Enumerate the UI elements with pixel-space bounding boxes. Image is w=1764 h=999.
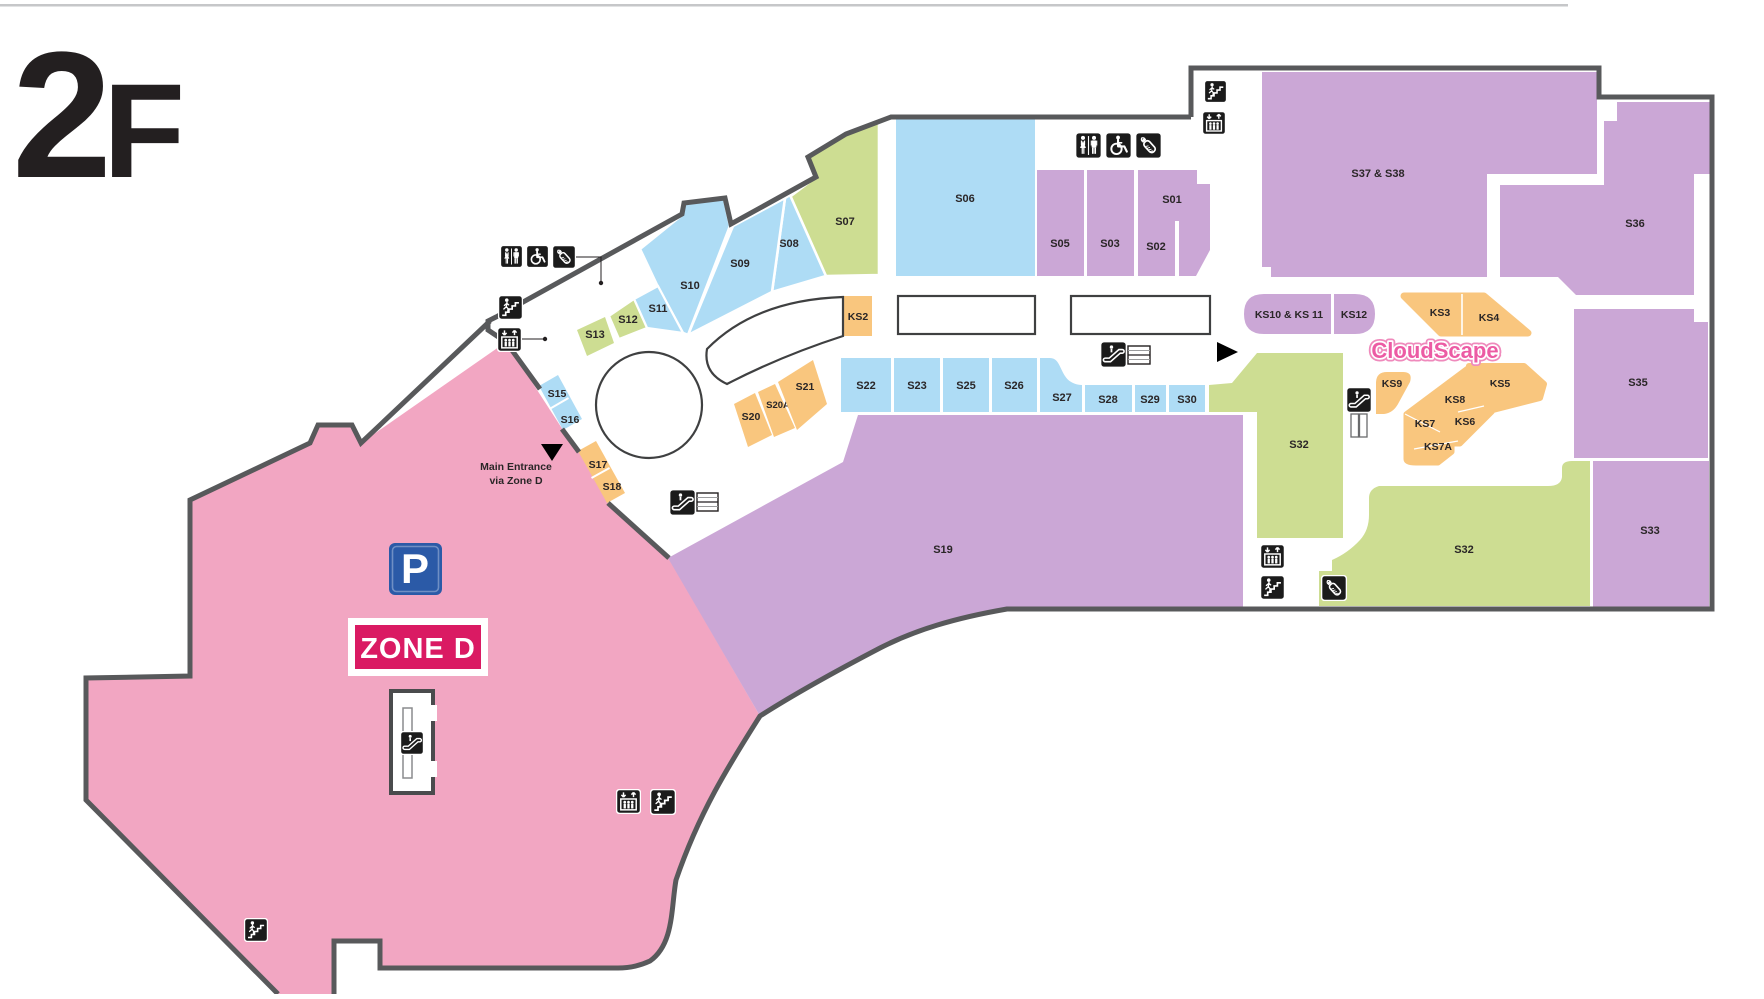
svg-text:KS7A: KS7A (1424, 441, 1452, 453)
svg-text:S20: S20 (742, 411, 761, 423)
svg-text:S17: S17 (589, 459, 608, 471)
svg-text:KS2: KS2 (848, 311, 869, 323)
svg-text:KS9: KS9 (1382, 378, 1403, 390)
svg-text:KS6: KS6 (1455, 416, 1476, 428)
svg-text:S25: S25 (956, 380, 976, 392)
svg-text:S10: S10 (680, 280, 700, 292)
svg-text:S21: S21 (796, 381, 815, 393)
svg-text:KS10 & KS 11: KS10 & KS 11 (1255, 309, 1323, 321)
svg-text:KS4: KS4 (1479, 312, 1500, 324)
svg-text:S33: S33 (1640, 525, 1660, 537)
svg-text:via Zone D: via Zone D (489, 475, 543, 487)
svg-text:S37 & S38: S37 & S38 (1351, 168, 1404, 180)
svg-text:S28: S28 (1098, 394, 1118, 406)
svg-text:S22: S22 (856, 380, 876, 392)
svg-text:Main Entrance: Main Entrance (480, 461, 552, 473)
svg-text:KS3: KS3 (1430, 307, 1451, 319)
svg-text:S13: S13 (585, 329, 605, 341)
svg-text:S05: S05 (1050, 238, 1070, 250)
svg-text:S16: S16 (561, 414, 580, 426)
svg-text:KS12: KS12 (1341, 309, 1367, 321)
svg-text:S01: S01 (1162, 194, 1182, 206)
svg-text:S12: S12 (618, 314, 638, 326)
svg-text:S07: S07 (835, 216, 855, 228)
svg-text:S30: S30 (1177, 394, 1197, 406)
svg-text:S11: S11 (649, 303, 668, 315)
svg-text:S32: S32 (1454, 544, 1474, 556)
svg-text:S18: S18 (603, 481, 622, 493)
svg-text:ZONE D: ZONE D (360, 633, 476, 665)
svg-text:S27: S27 (1052, 392, 1072, 404)
svg-text:KS7: KS7 (1415, 418, 1436, 430)
svg-text:S23: S23 (907, 380, 927, 392)
svg-text:S19: S19 (933, 544, 953, 556)
svg-text:S03: S03 (1100, 238, 1120, 250)
svg-text:CloudScape: CloudScape (1371, 338, 1498, 363)
svg-text:S35: S35 (1628, 377, 1648, 389)
svg-text:KS8: KS8 (1445, 394, 1466, 406)
svg-text:S06: S06 (955, 193, 975, 205)
svg-text:S26: S26 (1004, 380, 1024, 392)
svg-text:S32: S32 (1289, 439, 1309, 451)
svg-text:S29: S29 (1140, 394, 1160, 406)
svg-text:P: P (401, 545, 429, 592)
svg-text:S09: S09 (730, 258, 750, 270)
svg-text:S02: S02 (1146, 241, 1166, 253)
svg-text:S08: S08 (779, 238, 799, 250)
svg-text:S36: S36 (1625, 218, 1645, 230)
svg-text:S15: S15 (548, 388, 567, 400)
